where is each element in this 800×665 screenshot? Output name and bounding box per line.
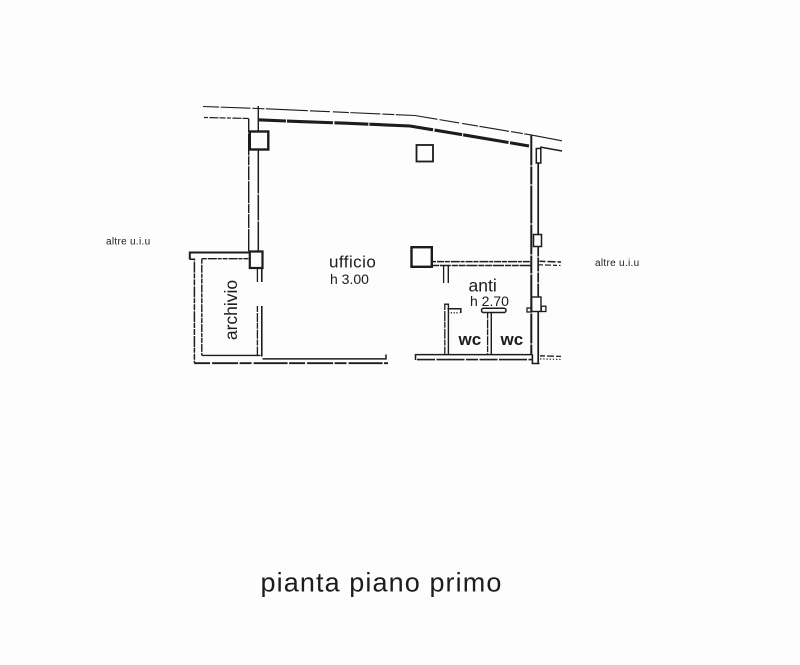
svg-text:h 2.70: h 2.70 (470, 293, 509, 309)
svg-text:archivio: archivio (221, 280, 241, 340)
svg-text:pianta piano primo: pianta piano primo (261, 568, 503, 598)
svg-text:altre u.i.u: altre u.i.u (595, 258, 639, 269)
svg-text:h 3.00: h 3.00 (330, 271, 369, 287)
svg-text:wc: wc (458, 330, 482, 349)
svg-text:altre u.i.u: altre u.i.u (106, 237, 150, 248)
svg-text:ufficio: ufficio (329, 253, 376, 272)
svg-text:wc: wc (500, 330, 524, 349)
